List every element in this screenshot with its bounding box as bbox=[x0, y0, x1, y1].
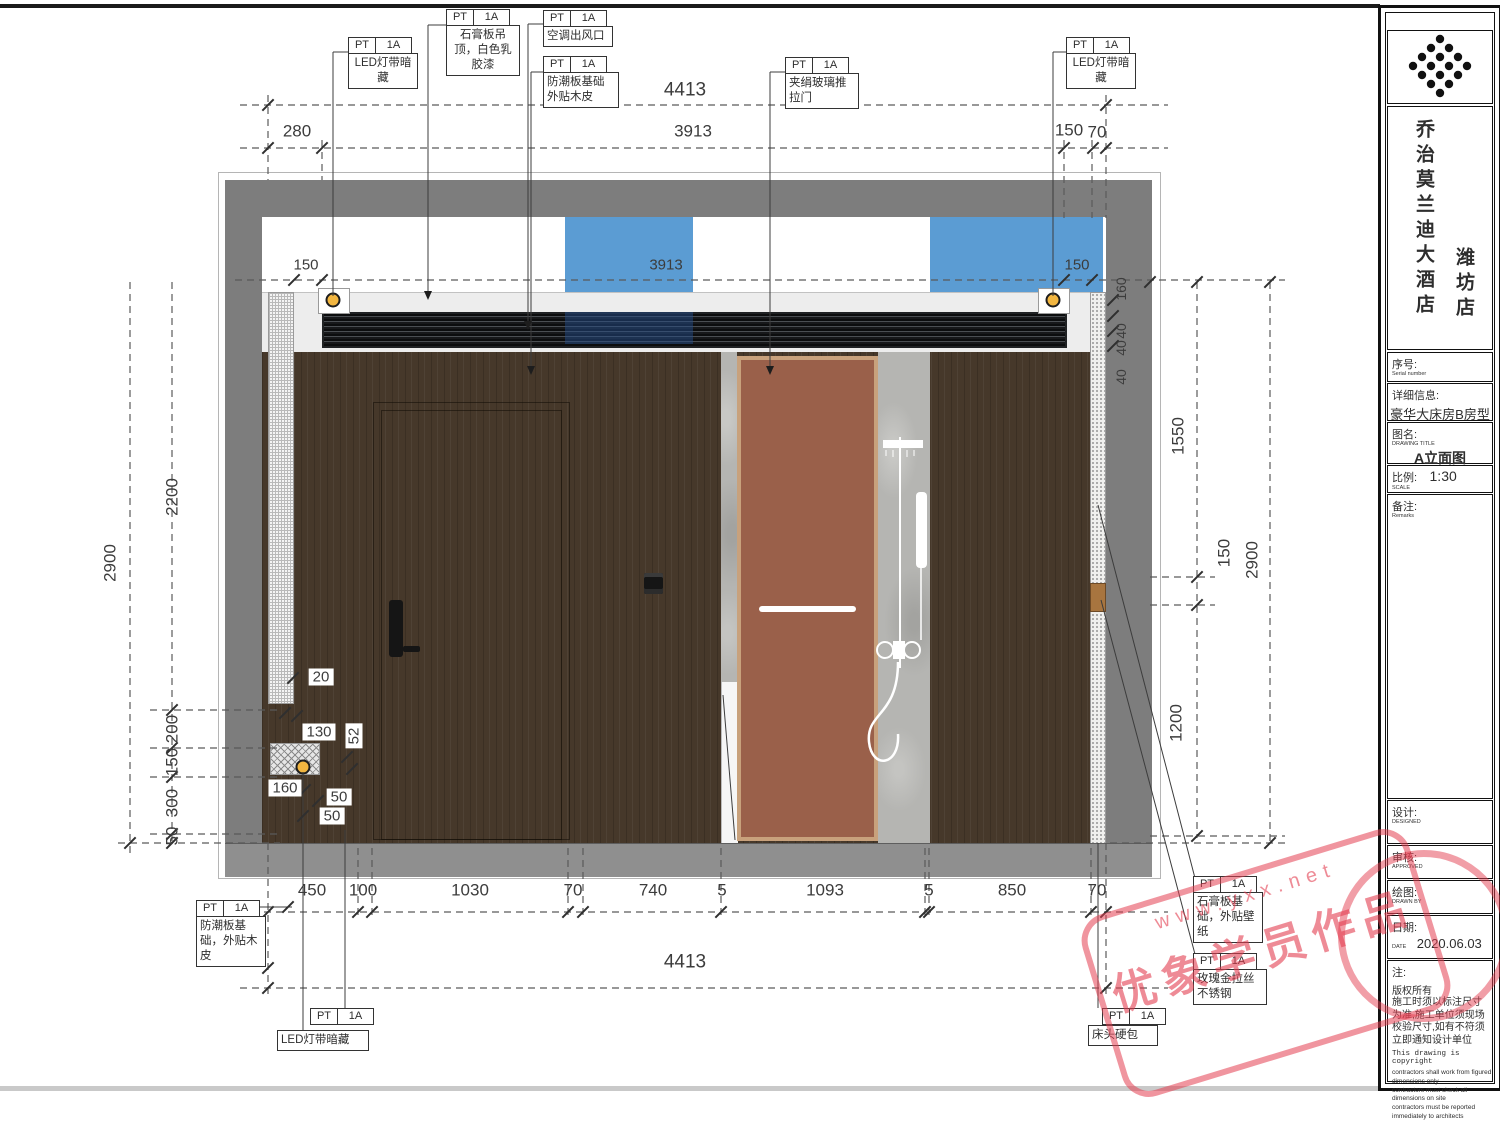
fabric-hatch-strip-left bbox=[268, 292, 294, 704]
dimension-tick bbox=[262, 99, 275, 112]
callout-header: PT1A bbox=[348, 37, 412, 54]
dimension-label: 50 bbox=[327, 789, 352, 806]
callout-tag: PT bbox=[1067, 38, 1094, 53]
dimension-label: 200 bbox=[164, 715, 181, 743]
callout: PT1A玫瑰金拉丝 不锈钢 bbox=[1193, 953, 1267, 1005]
callout-header: PT1A bbox=[310, 1008, 374, 1025]
wood-notch-right bbox=[1090, 583, 1106, 612]
callout-header: PT1A bbox=[446, 9, 510, 26]
floor-band bbox=[225, 843, 1152, 877]
callout-description: 床头硬包 bbox=[1088, 1025, 1158, 1046]
serial-sublabel: Serial number bbox=[1392, 372, 1492, 378]
dimension-tick bbox=[1087, 142, 1100, 155]
callout-code: 1A bbox=[474, 10, 509, 25]
dimension-label: 130 bbox=[302, 724, 335, 741]
design-sublabel: DESIGNED bbox=[1392, 820, 1492, 826]
scale-cell: 比例: 1:30 SCALE bbox=[1387, 465, 1493, 493]
drawnby-sublabel: DRAWN BY bbox=[1392, 900, 1492, 906]
copyright-en-title: This drawing is copyright bbox=[1392, 1050, 1492, 1066]
callout-tag: PT bbox=[1194, 877, 1221, 892]
design-cell: 设计: DESIGNED bbox=[1387, 800, 1493, 844]
callout-tag: PT bbox=[311, 1009, 338, 1024]
dimension-label: 150 bbox=[1064, 258, 1089, 273]
dimension-label: 40 bbox=[1114, 340, 1128, 356]
callout-code: 1A bbox=[338, 1009, 373, 1024]
callout-description: 防潮板基 础，外贴木 皮 bbox=[196, 916, 266, 967]
led-light-bottom-left bbox=[296, 760, 311, 775]
led-light-left bbox=[326, 293, 341, 308]
sheet-bottom-border bbox=[0, 1086, 1500, 1091]
dimension-label: 300 bbox=[164, 789, 181, 817]
dimension-label: 70 bbox=[564, 882, 583, 899]
drawing-sheet: 4413280391315070150391315045010010307074… bbox=[0, 0, 1500, 1092]
callout-description: 玫瑰金拉丝 不锈钢 bbox=[1193, 969, 1267, 1005]
dimension-tick bbox=[1100, 906, 1113, 919]
callout: PT1A石膏板基 础，外贴壁 纸 bbox=[1193, 876, 1263, 943]
dimension-label: 1200 bbox=[1168, 704, 1185, 742]
callout-tag: PT bbox=[544, 11, 571, 26]
leader-arrow bbox=[524, 321, 532, 330]
review-sublabel: APPROVED bbox=[1392, 865, 1492, 871]
callout: PT1A石膏板吊 顶，白色乳 胶漆 bbox=[446, 9, 520, 76]
dimension-tick bbox=[316, 142, 329, 155]
leader-arrow bbox=[424, 291, 432, 300]
dimension-label: 150 bbox=[1055, 122, 1083, 139]
dimension-label: 850 bbox=[998, 882, 1026, 899]
dimension-label: 1093 bbox=[806, 882, 844, 899]
headboard-crosshatch-block bbox=[270, 743, 320, 775]
sliding-door-panel bbox=[741, 360, 874, 837]
callout-description: 石膏板基 础，外贴壁 纸 bbox=[1193, 892, 1263, 943]
callout-code: 1A bbox=[1094, 38, 1129, 53]
callout: PT1ALED灯带暗藏 bbox=[310, 1008, 374, 1025]
entry-door-inner-line bbox=[381, 410, 562, 840]
dimension-label: 1550 bbox=[1170, 417, 1187, 455]
callout-description: LED灯带暗 藏 bbox=[348, 53, 418, 89]
callout-header: PT1A bbox=[543, 10, 607, 27]
dimension-label: 50 bbox=[320, 808, 345, 825]
sliding-door-handle bbox=[759, 606, 856, 612]
callout-tag: PT bbox=[1103, 1009, 1130, 1024]
dimension-tick bbox=[124, 837, 137, 850]
hotel-name-cell: 乔治莫兰迪大酒店 潍坊店 bbox=[1387, 106, 1493, 350]
dimension-label: 3913 bbox=[674, 123, 712, 140]
copyright-cn-1: 版权所有 bbox=[1392, 982, 1492, 997]
date-sublabel: DATE bbox=[1392, 945, 1406, 951]
blue-panel-right bbox=[930, 217, 1103, 292]
dimension-label: 3913 bbox=[649, 258, 682, 273]
remarks-label: 备注: bbox=[1392, 498, 1492, 514]
scale-label: 比例: bbox=[1392, 469, 1417, 485]
callout-tag: PT bbox=[447, 10, 474, 25]
title-block: 乔治莫兰迪大酒店 潍坊店 序号: Serial number 详细信息: 豪华大… bbox=[1378, 5, 1500, 1091]
ac-louver-blue-tint bbox=[565, 312, 693, 344]
review-cell: 审核: APPROVED bbox=[1387, 845, 1493, 879]
hotel-logo-icon bbox=[1390, 31, 1490, 99]
callout-description: 空调出风口 bbox=[543, 26, 613, 47]
room-type-value: 豪华大床房B房型 bbox=[1388, 404, 1492, 423]
led-light-right bbox=[1046, 293, 1061, 308]
callout: PT1A夹绢玻璃推 拉门 bbox=[785, 57, 859, 109]
callout-code: 1A bbox=[1221, 877, 1256, 892]
design-label: 设计: bbox=[1392, 804, 1492, 820]
dimension-tick bbox=[282, 901, 295, 914]
dimension-tick bbox=[1191, 599, 1204, 612]
dimension-label: 4413 bbox=[664, 81, 706, 100]
callout-header: PT1A bbox=[196, 900, 260, 917]
door-lock bbox=[389, 600, 403, 657]
dimension-tick bbox=[1191, 571, 1204, 584]
callout-tag: PT bbox=[349, 38, 376, 53]
dimension-tick bbox=[262, 982, 275, 995]
drawing-title-cell: 图名: DRAWING TITLE A立面图 bbox=[1387, 422, 1493, 464]
callout-header: PT1A bbox=[1193, 876, 1257, 893]
callout-code: 1A bbox=[571, 11, 606, 26]
callout-code: 1A bbox=[813, 58, 848, 73]
dimension-label: 20 bbox=[309, 669, 334, 686]
wall-switch bbox=[644, 573, 663, 594]
dimension-tick bbox=[1100, 982, 1113, 995]
dimension-label: 40 bbox=[1114, 323, 1128, 339]
leader-arrow bbox=[527, 366, 535, 375]
callout-header: PT1A bbox=[543, 56, 607, 73]
callout-description: 夹绢玻璃推 拉门 bbox=[785, 73, 859, 109]
dimension-tick bbox=[1191, 830, 1204, 843]
dimension-tick bbox=[352, 906, 365, 919]
dimension-label: 100 bbox=[349, 882, 377, 899]
dimension-label: 4413 bbox=[664, 953, 706, 972]
sheet-top-border bbox=[0, 4, 1380, 8]
dimension-label: 2900 bbox=[102, 544, 119, 582]
callout-description: LED灯带暗藏 bbox=[277, 1030, 369, 1051]
dimension-label: 150 bbox=[164, 748, 181, 776]
scale-sublabel: SCALE bbox=[1392, 486, 1492, 492]
callout-header: PT1A bbox=[785, 57, 849, 74]
dimension-tick bbox=[366, 906, 379, 919]
callout-code: 1A bbox=[1130, 1009, 1165, 1024]
dimension-label: 70 bbox=[1088, 882, 1107, 899]
callout-description: 防潮板基础 外贴木皮 bbox=[543, 72, 619, 108]
dimension-tick bbox=[1264, 276, 1277, 289]
hotel-name: 乔治莫兰迪大酒店 bbox=[1410, 119, 1437, 319]
callout: PT1A空调出风口 bbox=[543, 10, 613, 47]
leader-arrow bbox=[766, 366, 774, 375]
wall-section-left bbox=[225, 217, 262, 843]
dimension-label: 150 bbox=[293, 258, 318, 273]
dimension-tick bbox=[715, 906, 728, 919]
dimension-tick bbox=[562, 906, 575, 919]
dimension-label: 740 bbox=[639, 882, 667, 899]
dimension-tick bbox=[1264, 837, 1277, 850]
date-cell: 日期: DATE 2020.06.03 bbox=[1387, 915, 1493, 959]
callout: PT1A防潮板基础 外贴木皮 bbox=[543, 56, 619, 108]
drawnby-cell: 绘图: DRAWN BY bbox=[1387, 880, 1493, 914]
ac-louver-slot bbox=[322, 312, 1067, 348]
callout-code: 1A bbox=[376, 38, 411, 53]
date-label: 日期: bbox=[1392, 919, 1492, 935]
callout-tag: PT bbox=[1194, 954, 1221, 969]
callout: PT1ALED灯带暗 藏 bbox=[1066, 37, 1136, 89]
dimension-tick bbox=[1058, 142, 1071, 155]
dimension-label: 52 bbox=[346, 724, 363, 749]
dimension-label: 50 bbox=[164, 827, 181, 846]
callout-header: PT1A bbox=[1102, 1008, 1166, 1025]
info-label: 详细信息: bbox=[1392, 387, 1492, 403]
hotel-branch: 潍坊店 bbox=[1450, 247, 1477, 322]
door-handle bbox=[403, 646, 420, 652]
drawing-title-label: 图名: bbox=[1392, 426, 1492, 442]
dimension-label: 450 bbox=[298, 882, 326, 899]
copyright-cn-2: 施工时须以标注尺寸为准,施工单位须现场校验尺寸,如有不符须立即通知设计单位 bbox=[1392, 997, 1489, 1047]
marble-shower-wall bbox=[878, 352, 930, 843]
dimension-tick bbox=[1100, 99, 1113, 112]
date-value: 2020.06.03 bbox=[1417, 936, 1482, 951]
callout-header: PT1A bbox=[1193, 953, 1257, 970]
dimension-label: 160 bbox=[1114, 277, 1128, 300]
callout-tag: PT bbox=[544, 57, 571, 72]
logo-cell bbox=[1387, 30, 1493, 104]
wall-section-top bbox=[225, 180, 1152, 217]
callout-code: 1A bbox=[1221, 954, 1256, 969]
callout: PT1A床头硬包 bbox=[1102, 1008, 1166, 1025]
copyright-en-lines: contractors shall work from figured dime… bbox=[1392, 1069, 1492, 1122]
callout-code: 1A bbox=[224, 901, 259, 916]
info-cell: 详细信息: 豪华大床房B房型 bbox=[1387, 383, 1493, 421]
serial-cell: 序号: Serial number bbox=[1387, 352, 1493, 382]
dimension-label: 160 bbox=[268, 780, 301, 797]
dimension-label: 280 bbox=[283, 123, 311, 140]
dimension-label: 5 bbox=[717, 882, 726, 899]
dimension-label: 1030 bbox=[451, 882, 489, 899]
callout: PT1A防潮板基 础，外贴木 皮 bbox=[196, 900, 266, 967]
callout-description: LED灯带暗 藏 bbox=[1066, 53, 1136, 89]
callout-code: 1A bbox=[571, 57, 606, 72]
wallpaper-hatch-strip-right bbox=[1090, 292, 1106, 845]
serial-label: 序号: bbox=[1392, 356, 1492, 372]
review-label: 审核: bbox=[1392, 849, 1492, 865]
note-label: 注: bbox=[1392, 964, 1492, 980]
dimension-tick bbox=[577, 906, 590, 919]
callout: PT1ALED灯带暗 藏 bbox=[348, 37, 418, 89]
callout-header: PT1A bbox=[1066, 37, 1130, 54]
dimension-label: 5 bbox=[924, 882, 933, 899]
bathtub-edge bbox=[721, 682, 738, 843]
dimension-tick bbox=[1191, 276, 1204, 289]
callout-tag: PT bbox=[786, 58, 813, 73]
dimension-tick bbox=[1100, 142, 1113, 155]
dimension-label: 2900 bbox=[1244, 541, 1261, 579]
dimension-tick bbox=[1085, 906, 1098, 919]
dimension-tick bbox=[262, 142, 275, 155]
drawnby-label: 绘图: bbox=[1392, 884, 1492, 900]
dimension-label: 150 bbox=[1216, 539, 1233, 567]
remarks-sublabel: Remarks bbox=[1392, 514, 1492, 520]
scale-value: 1:30 bbox=[1430, 468, 1457, 484]
remarks-cell: 备注: Remarks bbox=[1387, 494, 1493, 799]
dimension-label: 70 bbox=[1088, 124, 1107, 141]
dimension-label: 40 bbox=[1114, 369, 1128, 385]
callout-description: 石膏板吊 顶，白色乳 胶漆 bbox=[446, 25, 520, 76]
note-cell: 注: 版权所有 施工时须以标注尺寸为准,施工单位须现场校验尺寸,如有不符须立即通… bbox=[1387, 960, 1493, 1082]
marble-strip-left bbox=[721, 352, 737, 682]
callout-tag: PT bbox=[197, 901, 224, 916]
dimension-label: 2200 bbox=[164, 478, 181, 516]
wall-section-right bbox=[1106, 217, 1152, 843]
